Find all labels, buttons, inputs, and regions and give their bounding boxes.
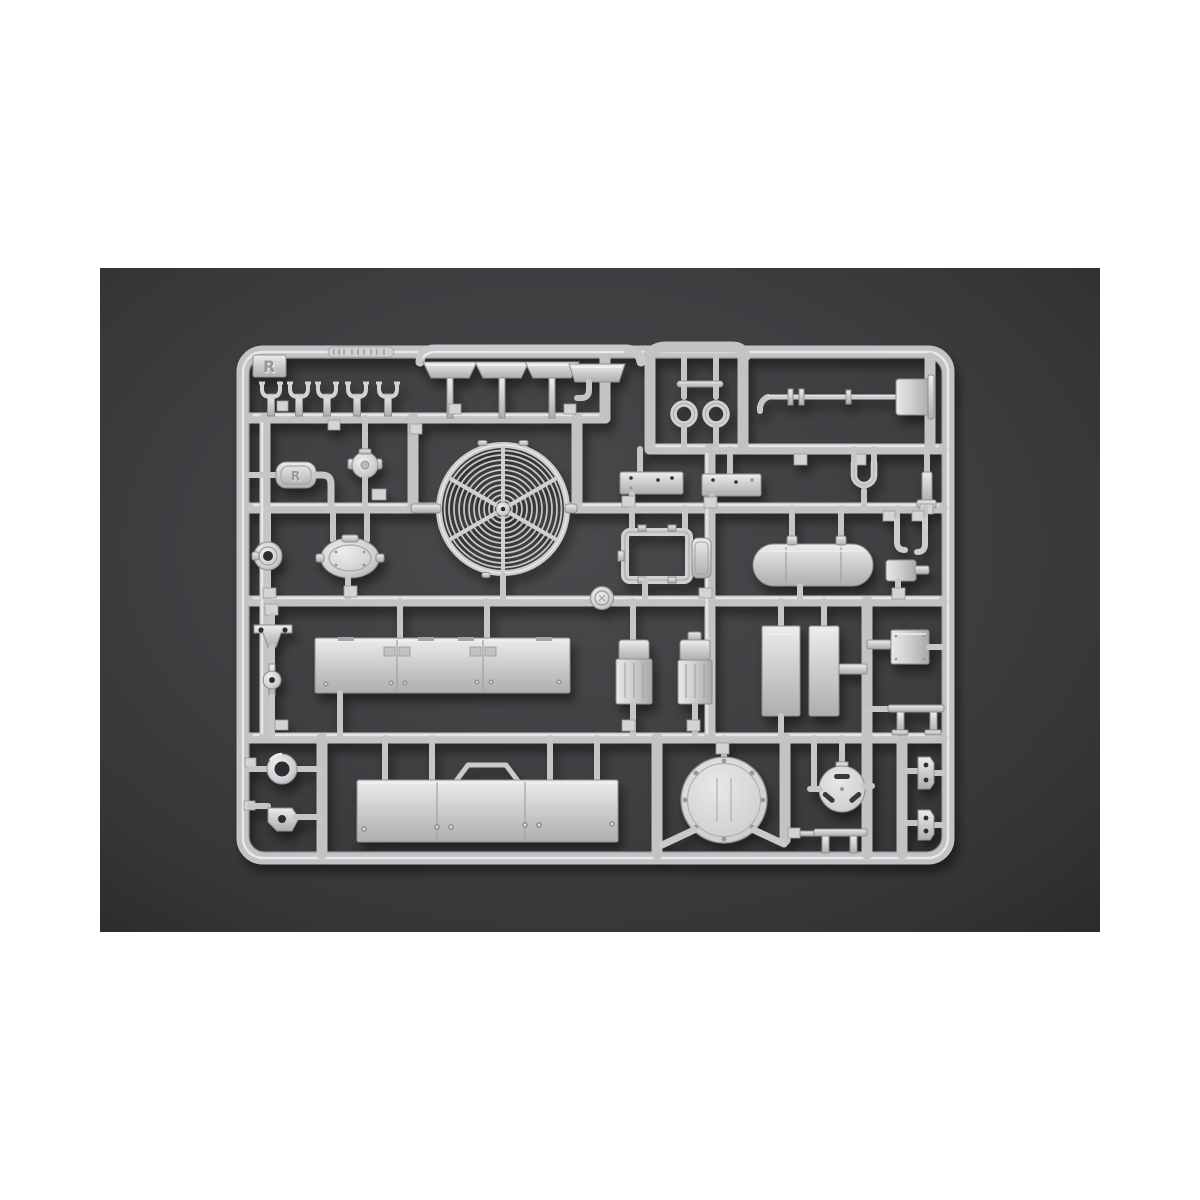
- mounting-table: [867, 705, 944, 735]
- round-flange: [252, 508, 282, 601]
- pipe-clamps: [259, 383, 422, 434]
- grommet-ring: [245, 754, 322, 784]
- fan-grille: [411, 441, 577, 602]
- pill-letter: R: [291, 469, 300, 483]
- product-photo: .run{stroke:#c3c3c6;stroke-width:11;stro…: [100, 268, 1100, 932]
- molded-text-strip: [328, 347, 394, 357]
- ejector-logo-disc: [591, 587, 614, 610]
- spherical-valve: [348, 418, 386, 508]
- axle-end-block: [896, 375, 934, 419]
- low-table: [788, 828, 867, 853]
- pump-box: [886, 560, 929, 601]
- trapezoid-pads: [423, 362, 625, 418]
- j-hooks: [883, 508, 925, 552]
- door-panel: [692, 538, 712, 598]
- sprue: R R: [243, 347, 948, 858]
- panel-handle: [456, 765, 518, 781]
- equipment-plates: [620, 449, 866, 508]
- sprue-photo-svg: .run{stroke:#c3c3c6;stroke-width:11;stro…: [100, 268, 1100, 932]
- fuel-tank: [753, 508, 873, 601]
- axle-shaft: [760, 375, 934, 419]
- page: .run{stroke:#c3c3c6;stroke-width:11;stro…: [0, 0, 1200, 1200]
- side-post: [917, 449, 936, 514]
- seats: [616, 601, 712, 738]
- sprue-letter: R: [263, 357, 275, 376]
- caster-bracket: [244, 801, 322, 831]
- corner-letter-tab: R R: [253, 355, 286, 377]
- skirt-panel: [357, 738, 618, 842]
- storage-boxes: [762, 601, 867, 738]
- hinge-brackets: [902, 757, 944, 840]
- compartment-panel: [315, 601, 570, 738]
- tow-eyelets: [674, 358, 727, 449]
- large-round-hatch: [662, 738, 784, 845]
- junction-box: [867, 630, 942, 664]
- window-frame: [618, 508, 689, 601]
